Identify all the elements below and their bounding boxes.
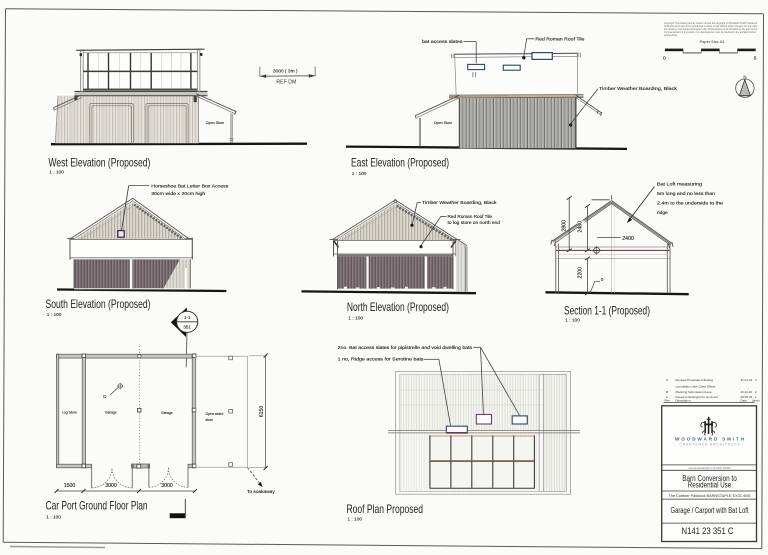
svg-text:Garage / Carport with Bat Loft: Garage / Carport with Bat Loft [671,506,750,515]
svg-text:2480: 2480 [578,221,584,233]
svg-text:1 : 100: 1 : 100 [49,169,64,175]
svg-text:1-1: 1-1 [184,315,191,320]
svg-text:Bat Loft measuring: Bat Loft measuring [657,182,702,188]
svg-text:3000: 3000 [105,483,117,489]
svg-text:N141 23 351 C: N141 23 351 C [682,526,734,536]
svg-text:2.4m to the underside to the: 2.4m to the underside to the [657,201,723,207]
svg-text:16.11.23: 16.11.23 [741,390,753,394]
svg-text:bat access slates: bat access slates [422,39,463,45]
svg-text:to log store on north end: to log store on north end [448,220,501,226]
svg-text:To soakaway: To soakaway [247,489,275,495]
svg-text:commencement of any works. Any: commencement of any works. Any discrepan… [664,30,756,34]
svg-text:Planning Submission Issue: Planning Submission Issue [676,390,712,394]
svg-text:www.woodwardsmith.co.uk 012: www.woodwardsmith.co.uk 01271 000000 [689,466,731,470]
svg-text:Open Store: Open Store [206,121,224,125]
svg-text:ridge: ridge [657,210,668,216]
svg-text:proceeding.: proceeding. [664,33,678,37]
svg-text:2800: 2800 [562,220,568,232]
svg-text:5: 5 [754,56,757,62]
svg-text:Red Roman Roof Tile: Red Roman Roof Tile [448,214,493,220]
svg-text:Open sided: Open sided [205,412,223,416]
svg-text:D: D [103,394,106,399]
svg-text:6150: 6150 [259,406,265,418]
svg-text:1 : 100: 1 : 100 [46,515,61,521]
svg-text:2200: 2200 [577,267,583,279]
svg-text:3000: 3000 [161,483,173,489]
svg-text:Open Store: Open Store [434,121,452,125]
svg-text:30cm wide x 20cm high: 30cm wide x 20cm high [151,191,205,197]
svg-text:Timber Weather Boarding, Black: Timber Weather Boarding, Black [422,200,497,206]
svg-text:0: 0 [663,56,666,62]
svg-text:REF DM: REF DM [276,79,296,85]
svg-text:Car Port Ground Floor Plan: Car Port Ground Floor Plan [46,500,148,513]
svg-text:Red Roman Roof Tile: Red Roman Roof Tile [535,37,584,43]
svg-text:2400: 2400 [622,236,634,242]
svg-text:CHARTERED ARCHITECTS: CHARTERED ARCHITECTS [680,443,740,447]
svg-text:Description: Description [676,399,691,403]
svg-text:351: 351 [183,325,191,330]
svg-text:3000 ( 3m ): 3000 ( 3m ) [273,69,298,75]
svg-text:1 : 100: 1 : 100 [47,312,62,318]
svg-text:Roof Plan Proposed: Roof Plan Proposed [347,503,424,516]
svg-text:(time): (time) [752,399,760,403]
svg-text:Rev: Rev [665,399,671,403]
svg-text:1 : 100: 1 : 100 [352,171,367,177]
svg-text:Log Store: Log Store [62,411,77,415]
svg-text:West Elevation (Proposed): West Elevation (Proposed) [48,157,150,170]
svg-text:B: B [666,390,668,394]
svg-text:2no. Bat access slates for pip: 2no. Bat access slates for pipistrelle a… [338,345,473,351]
svg-text:Garage: Garage [161,411,173,415]
svg-text:South Elevation (Proposed): South Elevation (Proposed) [46,298,151,311]
svg-text:1 no, Ridge access for Serotin: 1 no, Ridge access for Serotine bats [338,357,425,363]
svg-text:Garage: Garage [105,411,117,415]
svg-text:Revised Proposals following: Revised Proposals following [676,378,714,382]
svg-text:1500: 1500 [64,483,76,489]
svg-text:store: store [205,418,213,422]
svg-text:31.01.24: 31.01.24 [741,378,753,382]
svg-text:North Elevation (Proposed): North Elevation (Proposed) [347,301,449,314]
svg-text:Date: Date [741,399,748,403]
svg-text:East Elevation (Proposed): East Elevation (Proposed) [351,157,449,170]
svg-text:The Cobbler Paddock BARNSTAP: The Cobbler Paddock BARNSTAPLE EX31 4NS [669,494,752,498]
svg-text:Horseshoe Bat Letter Box Acces: Horseshoe Bat Letter Box Access [151,183,229,189]
svg-text:Timber Weather Boarding, Black: Timber Weather Boarding, Black [599,86,678,92]
svg-text:1 : 100: 1 : 100 [565,318,580,324]
svg-text:0: 0 [601,277,604,283]
svg-text:consultation with Class Office: consultation with Class Officer [676,384,716,388]
svg-text:1 : 100: 1 : 100 [347,517,362,523]
svg-text:Residential Use: Residential Use [688,481,732,490]
svg-text:1 : 100: 1 : 100 [348,316,363,322]
svg-text:5m long and no less than: 5m long and no less than [657,191,715,197]
svg-text:Paper Size A3: Paper Size A3 [700,39,725,44]
svg-text:Section 1-1 (Proposed): Section 1-1 (Proposed) [564,305,650,318]
